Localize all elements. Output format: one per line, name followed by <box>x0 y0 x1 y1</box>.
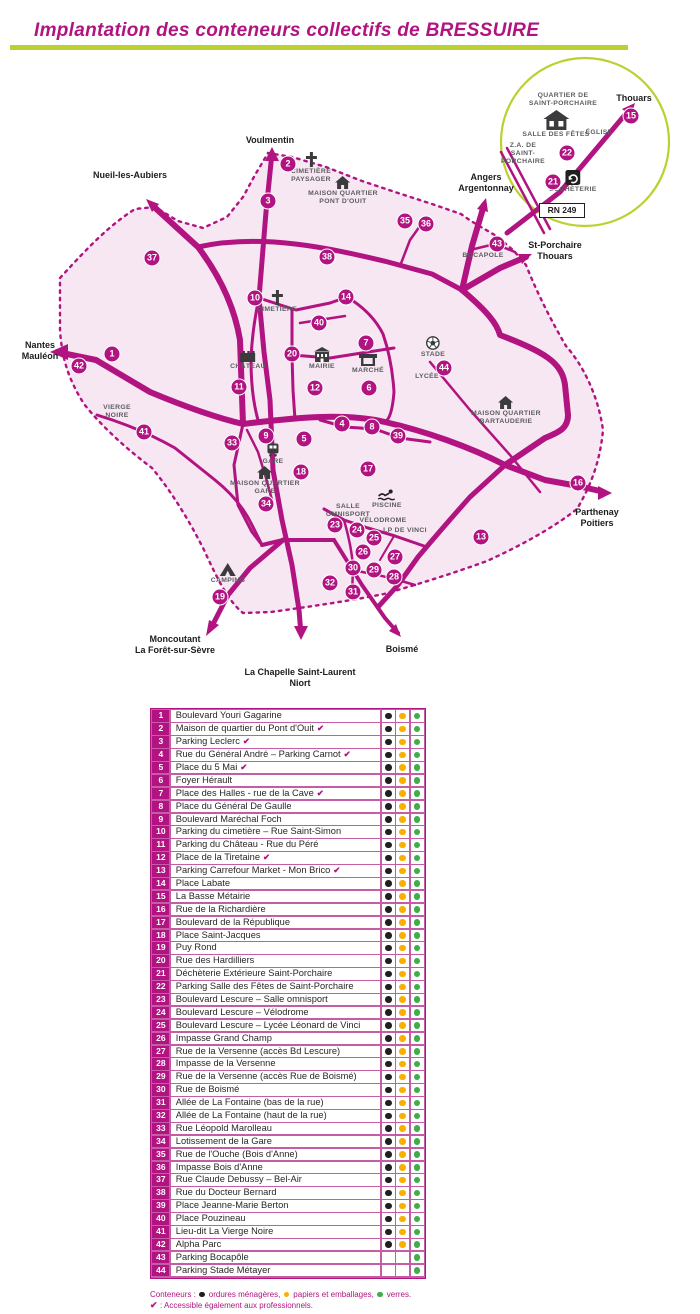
dot-cell-yellow <box>396 762 409 774</box>
dot-cell-green <box>411 994 424 1006</box>
table-row: 4Rue du Général André – Parking Carnot✔ <box>152 749 423 761</box>
map-marker-18: 18 <box>293 464 310 481</box>
row-number: 6 <box>152 775 169 787</box>
dot-cell-black <box>382 1058 395 1070</box>
black-dot-icon <box>385 1151 392 1158</box>
green-dot-icon <box>414 1203 421 1210</box>
pro-check-icon: ✔ <box>344 749 351 759</box>
table-row: 7Place des Halles - rue de la Cave✔ <box>152 788 423 800</box>
green-dot-icon <box>414 919 421 926</box>
green-dot-icon <box>414 726 421 733</box>
row-number: 1 <box>152 710 169 722</box>
black-dot-icon <box>385 945 392 952</box>
green-dot-icon <box>414 996 421 1003</box>
dot-cell-yellow <box>396 1200 409 1212</box>
row-number: 22 <box>152 981 169 993</box>
chateau-icon <box>240 350 257 362</box>
black-dot-icon <box>385 842 392 849</box>
dot-cell-black <box>382 749 395 761</box>
map-marker-19: 19 <box>212 589 229 606</box>
legend-item-label: papiers et emballages, <box>291 1290 376 1299</box>
dot-cell-green <box>411 1252 424 1264</box>
green-dot-icon <box>414 1216 421 1223</box>
row-name: Boulevard de la République <box>171 917 381 929</box>
landmark-label: VIERGE <box>103 404 131 412</box>
landmark-eglise: ÉGLISE <box>585 129 612 137</box>
map-marker-36: 36 <box>418 216 435 233</box>
dot-cell-black <box>382 723 395 735</box>
green-dot-icon <box>414 739 421 746</box>
dot-cell-green <box>411 1136 424 1148</box>
yellow-dot-icon <box>399 1164 406 1171</box>
landmark-velodrome: VÉLODROME <box>360 517 407 525</box>
row-name: Place Labate <box>171 878 381 890</box>
destination-label: Niort <box>244 678 355 689</box>
black-dot-icon <box>385 971 392 978</box>
cimetiere-paysager-icon <box>303 151 318 167</box>
dot-cell-yellow <box>396 1136 409 1148</box>
yellow-dot-icon <box>399 1061 406 1068</box>
row-name: Boulevard Youri Gagarine <box>171 710 381 722</box>
destination-label: Voulmentin <box>246 135 294 146</box>
yellow-dot-icon <box>399 1241 406 1248</box>
dot-cell-black <box>382 981 395 993</box>
dot-cell-green <box>411 1187 424 1199</box>
dot-cell-yellow <box>396 1162 409 1174</box>
black-dot-icon <box>385 906 392 913</box>
yellow-dot-icon <box>399 777 406 784</box>
row-name: Rue des Hardilliers <box>171 955 381 967</box>
landmark-label: CIMETIÈRE <box>257 306 297 314</box>
landmark-label: PORCHAIRE <box>501 158 545 166</box>
dot-cell-black <box>382 1123 395 1135</box>
yellow-dot-icon <box>399 803 406 810</box>
dot-cell-black <box>382 801 395 813</box>
dot-cell-yellow <box>396 994 409 1006</box>
landmark-label: CHÂTEAU <box>230 363 266 371</box>
dot-cell-yellow <box>396 1213 409 1225</box>
dot-cell-yellow <box>396 1110 409 1122</box>
dot-cell-green <box>411 1226 424 1238</box>
map-marker-42: 42 <box>71 358 88 375</box>
yellow-dot-icon <box>399 906 406 913</box>
black-dot-icon <box>385 764 392 771</box>
cimetiere-icon <box>269 289 284 305</box>
dot-cell-green <box>411 891 424 903</box>
landmark-label: SALLE <box>336 503 360 511</box>
green-dot-icon <box>414 777 421 784</box>
pro-check-icon: ✔ <box>317 788 324 798</box>
yellow-dot-icon <box>399 1048 406 1055</box>
black-dot-icon <box>385 984 392 991</box>
map-marker-20: 20 <box>284 346 301 363</box>
table-row: 31Allée de La Fontaine (bas de la rue) <box>152 1097 423 1109</box>
black-dot-icon <box>385 1048 392 1055</box>
dot-cell-green <box>411 981 424 993</box>
row-number: 5 <box>152 762 169 774</box>
row-number: 42 <box>152 1239 169 1251</box>
dot-cell-green <box>411 955 424 967</box>
dot-cell-yellow <box>396 891 409 903</box>
destination-nueil-les-aubiers: Nueil-les-Aubiers <box>93 170 167 181</box>
yellow-dot-icon <box>399 1190 406 1197</box>
row-number: 18 <box>152 930 169 942</box>
dot-cell-black <box>382 1252 395 1264</box>
row-name: Rue du Général André – Parking Carnot✔ <box>171 749 381 761</box>
dot-cell-black <box>382 1162 395 1174</box>
dot-cell-yellow <box>396 788 409 800</box>
black-dot-icon <box>385 1087 392 1094</box>
green-dot-icon <box>414 1048 421 1055</box>
row-name: Parking Bocapôle <box>171 1252 381 1264</box>
black-dot-icon <box>385 1138 392 1145</box>
yellow-dot-icon <box>399 764 406 771</box>
row-name: Rue Claude Debussy – Bel-Air <box>171 1174 381 1186</box>
dot-cell-green <box>411 1174 424 1186</box>
dot-cell-green <box>411 762 424 774</box>
landmark-maison-quartier-gare: MAISON QUARTIERGARE <box>230 466 300 496</box>
green-dot-icon <box>414 816 421 823</box>
destination-label: Thouars <box>616 93 652 104</box>
dot-cell-black <box>382 1187 395 1199</box>
map-marker-30: 30 <box>345 560 362 577</box>
row-number: 36 <box>152 1162 169 1174</box>
dot-cell-green <box>411 775 424 787</box>
yellow-dot-icon <box>399 1151 406 1158</box>
landmark-label: GARE <box>262 458 283 466</box>
dot-cell-black <box>382 955 395 967</box>
dot-cell-green <box>411 930 424 942</box>
landmark-maison-quartier-pont-douit: MAISON QUARTIERPONT D'OUIT <box>308 176 378 206</box>
dot-cell-green <box>411 1265 424 1277</box>
map-marker-38: 38 <box>319 249 336 266</box>
table-row: 37Rue Claude Debussy – Bel-Air <box>152 1174 423 1186</box>
yellow-dot-icon <box>399 971 406 978</box>
yellow-dot-icon <box>399 1022 406 1029</box>
landmark-vierge-noire: VIERGENOIRE <box>103 404 131 420</box>
black-dot-icon <box>385 829 392 836</box>
green-dot-icon <box>414 1113 421 1120</box>
row-number: 14 <box>152 878 169 890</box>
map-marker-32: 32 <box>322 575 339 592</box>
row-name: Lotissement de la Gare <box>171 1136 381 1148</box>
row-number: 37 <box>152 1174 169 1186</box>
row-number: 13 <box>152 865 169 877</box>
dot-cell-yellow <box>396 1123 409 1135</box>
dot-cell-black <box>382 1046 395 1058</box>
destination-label: Poitiers <box>575 518 619 529</box>
yellow-dot-icon <box>399 752 406 759</box>
table-row: 18Place Saint-Jacques <box>152 930 423 942</box>
dot-cell-black <box>382 736 395 748</box>
dot-cell-green <box>411 723 424 735</box>
dot-cell-green <box>411 814 424 826</box>
destination-moncoutant: MoncoutantLa Forêt-sur-Sèvre <box>135 634 215 656</box>
dot-cell-yellow <box>396 955 409 967</box>
dot-cell-green <box>411 826 424 838</box>
landmark-label: MAISON QUARTIER <box>230 480 300 488</box>
dot-cell-black <box>382 775 395 787</box>
map-marker-5: 5 <box>296 431 313 448</box>
black-dot-icon <box>385 1061 392 1068</box>
dot-cell-green <box>411 749 424 761</box>
green-dot-icon <box>414 958 421 965</box>
map-marker-34: 34 <box>258 496 275 513</box>
map-marker-12: 12 <box>307 380 324 397</box>
destination-nantes-mauleon: NantesMauléon <box>22 340 59 362</box>
map-marker-37: 37 <box>144 250 161 267</box>
landmark-gare: GARE <box>262 442 283 466</box>
table-row: 13Parking Carrefour Market - Mon Brico✔ <box>152 865 423 877</box>
dot-cell-black <box>382 1174 395 1186</box>
row-name: Place du Général De Gaulle <box>171 801 381 813</box>
dot-cell-black <box>382 814 395 826</box>
map-marker-40: 40 <box>311 315 328 332</box>
row-number: 4 <box>152 749 169 761</box>
dot-cell-black <box>382 968 395 980</box>
table-row: 19Puy Rond <box>152 942 423 954</box>
green-dot-icon <box>414 1074 421 1081</box>
dot-cell-yellow <box>396 1226 409 1238</box>
row-number: 43 <box>152 1252 169 1264</box>
table-row: 3Parking Leclerc✔ <box>152 736 423 748</box>
row-name: Allée de La Fontaine (bas de la rue) <box>171 1097 381 1109</box>
table-row: 40Place Pouzineau <box>152 1213 423 1225</box>
row-name: Rue de la Versenne (accès Bd Lescure) <box>171 1046 381 1058</box>
destination-thouars-inset: Thouars <box>616 93 652 104</box>
row-name: Boulevard Lescure – Lycée Léonard de Vin… <box>171 1020 381 1032</box>
salle-des-fetes-icon <box>541 110 571 130</box>
landmark-salle-des-fetes: SALLE DES FÊTES <box>522 110 589 139</box>
destination-label: Moncoutant <box>135 634 215 645</box>
black-dot-icon <box>385 1241 392 1248</box>
destination-la-chapelle-niort: La Chapelle Saint-LaurentNiort <box>244 667 355 689</box>
landmark-label: CAMPING <box>211 577 246 585</box>
green-dot-icon <box>414 764 421 771</box>
legend-black-dot-icon <box>199 1292 205 1298</box>
green-dot-icon <box>414 1035 421 1042</box>
row-number: 39 <box>152 1200 169 1212</box>
map-marker-44: 44 <box>436 360 453 377</box>
map-marker-2: 2 <box>280 156 297 173</box>
green-dot-icon <box>414 1177 421 1184</box>
row-name: Rue du Docteur Bernard <box>171 1187 381 1199</box>
row-name: Place Saint-Jacques <box>171 930 381 942</box>
green-dot-icon <box>414 829 421 836</box>
yellow-dot-icon <box>399 1216 406 1223</box>
table-row: 44Parking Stade Métayer <box>152 1265 423 1277</box>
destination-angers-argentonnay: AngersArgentonnay <box>458 172 514 194</box>
landmark-label: MAISON QUARTIER <box>308 190 378 198</box>
row-name: Allée de La Fontaine (haut de la rue) <box>171 1110 381 1122</box>
maison-quartier-gare-icon <box>257 466 272 479</box>
row-name: Rue de la Richardière <box>171 904 381 916</box>
dot-cell-black <box>382 839 395 851</box>
dot-cell-green <box>411 1239 424 1251</box>
map-marker-41: 41 <box>136 424 153 441</box>
dot-cell-yellow <box>396 1149 409 1161</box>
destination-label: La Forêt-sur-Sèvre <box>135 645 215 656</box>
green-dot-icon <box>414 1125 421 1132</box>
black-dot-icon <box>385 739 392 746</box>
yellow-dot-icon <box>399 893 406 900</box>
yellow-dot-icon <box>399 726 406 733</box>
dot-cell-black <box>382 1226 395 1238</box>
dot-cell-green <box>411 1020 424 1032</box>
dot-cell-green <box>411 1162 424 1174</box>
row-name: Place de la Tiretaine✔ <box>171 852 381 864</box>
table-row: 38Rue du Docteur Bernard <box>152 1187 423 1199</box>
destination-label: Boismé <box>386 644 419 655</box>
table-row: 33Rue Léopold Marolleau <box>152 1123 423 1135</box>
dot-cell-black <box>382 762 395 774</box>
green-dot-icon <box>414 803 421 810</box>
map-marker-33: 33 <box>224 435 241 452</box>
row-name: Impasse Grand Champ <box>171 1033 381 1045</box>
black-dot-icon <box>385 1190 392 1197</box>
map-marker-27: 27 <box>387 549 404 566</box>
landmark-label: STADE <box>421 351 445 359</box>
map-marker-10: 10 <box>247 290 264 307</box>
destination-label: St-Porchaire <box>528 240 582 251</box>
landmark-label: MARCHÉ <box>352 367 384 375</box>
row-name: Parking Carrefour Market - Mon Brico✔ <box>171 865 381 877</box>
row-number: 8 <box>152 801 169 813</box>
yellow-dot-icon <box>399 829 406 836</box>
black-dot-icon <box>385 1177 392 1184</box>
map-marker-21: 21 <box>545 174 562 191</box>
green-dot-icon <box>414 1190 421 1197</box>
dot-cell-yellow <box>396 775 409 787</box>
row-name: Boulevard Lescure – Vélodrome <box>171 1007 381 1019</box>
pro-check-icon: ✔ <box>333 865 340 875</box>
green-dot-icon <box>414 1254 421 1261</box>
row-number: 28 <box>152 1058 169 1070</box>
dot-cell-yellow <box>396 736 409 748</box>
yellow-dot-icon <box>399 1035 406 1042</box>
yellow-dot-icon <box>399 790 406 797</box>
dot-cell-yellow <box>396 930 409 942</box>
landmark-label: PONT D'OUIT <box>319 198 366 206</box>
dot-cell-black <box>382 930 395 942</box>
dot-cell-black <box>382 1033 395 1045</box>
destination-parthenay-poitiers: ParthenayPoitiers <box>575 507 619 529</box>
map-marker-1: 1 <box>104 346 121 363</box>
row-number: 44 <box>152 1265 169 1277</box>
table-row: 22Parking Salle des Fêtes de Saint-Porch… <box>152 981 423 993</box>
destination-st-porchaire-thouars: St-PorchaireThouars <box>528 240 582 262</box>
yellow-dot-icon <box>399 1177 406 1184</box>
dot-cell-yellow <box>396 801 409 813</box>
dot-cell-green <box>411 968 424 980</box>
row-number: 32 <box>152 1110 169 1122</box>
container-list-table: 1Boulevard Youri Gagarine2Maison de quar… <box>150 708 426 1279</box>
dot-cell-black <box>382 1149 395 1161</box>
black-dot-icon <box>385 1203 392 1210</box>
legend-item-label: verres. <box>385 1290 412 1299</box>
destination-label: La Chapelle Saint-Laurent <box>244 667 355 678</box>
dot-cell-green <box>411 878 424 890</box>
landmark-quartier-saint-porchaire: QUARTIER DESAINT-PORCHAIRE <box>529 92 597 108</box>
legend-prefix: Conteneurs : <box>150 1290 198 1299</box>
landmark-label: MAIRIE <box>309 363 335 371</box>
row-number: 27 <box>152 1046 169 1058</box>
dot-cell-black <box>382 1071 395 1083</box>
legend-item-label: ordures ménagères, <box>207 1290 283 1299</box>
row-number: 20 <box>152 955 169 967</box>
landmark-label: BOCAPOLE <box>462 252 503 260</box>
yellow-dot-icon <box>399 868 406 875</box>
table-row: 36Impasse Bois d'Anne <box>152 1162 423 1174</box>
map-marker-15: 15 <box>623 108 640 125</box>
table-row: 41Lieu-dit La Vierge Noire <box>152 1226 423 1238</box>
yellow-dot-icon <box>399 1087 406 1094</box>
landmark-label: SAINT- <box>511 150 535 158</box>
destination-boisme: Boismé <box>386 644 419 655</box>
map-marker-4: 4 <box>334 416 351 433</box>
table-row: 5Place du 5 Mai✔ <box>152 762 423 774</box>
dot-cell-black <box>382 994 395 1006</box>
black-dot-icon <box>385 855 392 862</box>
green-dot-icon <box>414 842 421 849</box>
green-dot-icon <box>414 945 421 952</box>
table-row: 10Parking du cimetière – Rue Saint-Simon <box>152 826 423 838</box>
landmark-label: ÉGLISE <box>585 129 612 137</box>
landmark-mairie: MAIRIE <box>309 347 335 371</box>
row-number: 19 <box>152 942 169 954</box>
dot-cell-yellow <box>396 1058 409 1070</box>
rn249-sign: RN 249 <box>539 203 585 218</box>
table-row: 2Maison de quartier du Pont d'Ouit✔ <box>152 723 423 735</box>
yellow-dot-icon <box>399 932 406 939</box>
yellow-dot-icon <box>399 958 406 965</box>
pro-check-icon: ✔ <box>317 723 324 733</box>
dot-cell-yellow <box>396 710 409 722</box>
dot-cell-green <box>411 1110 424 1122</box>
dot-cell-black <box>382 788 395 800</box>
row-number: 40 <box>152 1213 169 1225</box>
row-name: Place des Halles - rue de la Cave✔ <box>171 788 381 800</box>
map-marker-13: 13 <box>473 529 490 546</box>
green-dot-icon <box>414 1087 421 1094</box>
map-marker-11: 11 <box>231 379 248 396</box>
row-number: 7 <box>152 788 169 800</box>
dot-cell-yellow <box>396 1084 409 1096</box>
yellow-dot-icon <box>399 855 406 862</box>
black-dot-icon <box>385 752 392 759</box>
dot-cell-green <box>411 1149 424 1161</box>
row-name: Rue Léopold Marolleau <box>171 1123 381 1135</box>
destination-label: Nantes <box>22 340 59 351</box>
yellow-dot-icon <box>399 1009 406 1016</box>
landmark-label: VÉLODROME <box>360 517 407 525</box>
dot-cell-green <box>411 865 424 877</box>
green-dot-icon <box>414 932 421 939</box>
row-number: 10 <box>152 826 169 838</box>
row-number: 30 <box>152 1084 169 1096</box>
map-marker-26: 26 <box>355 544 372 561</box>
yellow-dot-icon <box>399 880 406 887</box>
row-number: 3 <box>152 736 169 748</box>
row-name: Impasse Bois d'Anne <box>171 1162 381 1174</box>
dot-cell-yellow <box>396 981 409 993</box>
row-number: 16 <box>152 904 169 916</box>
black-dot-icon <box>385 726 392 733</box>
map-marker-25: 25 <box>366 530 383 547</box>
pro-check-icon: ✔ <box>243 736 250 746</box>
table-row: 29Rue de la Versenne (accès Rue de Boism… <box>152 1071 423 1083</box>
yellow-dot-icon <box>399 713 406 720</box>
